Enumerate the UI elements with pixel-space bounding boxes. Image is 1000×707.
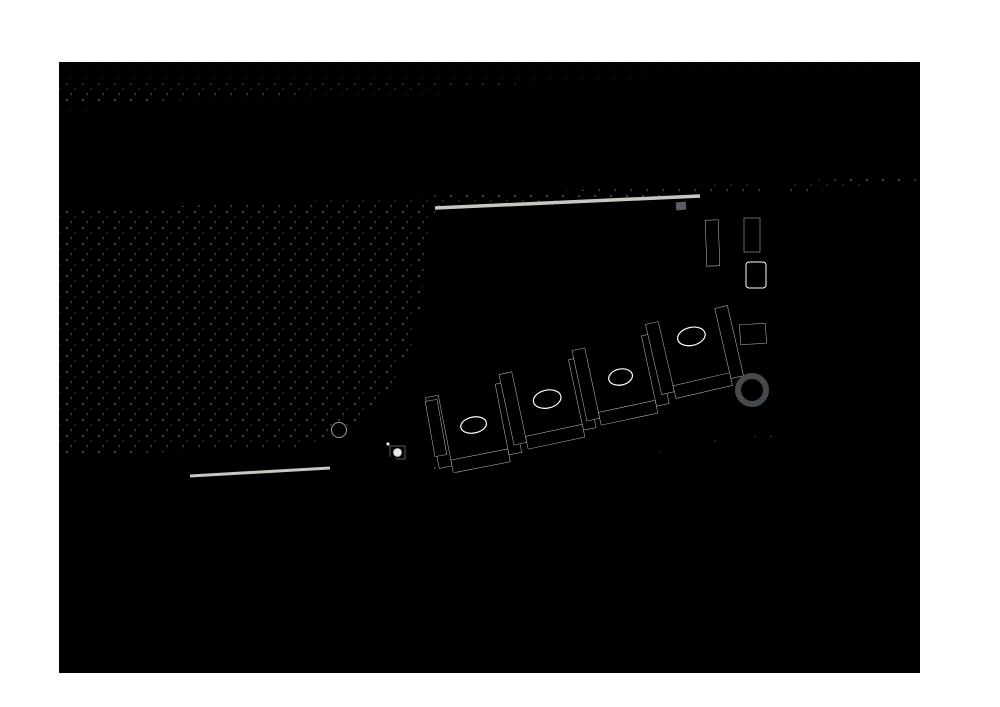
amenity-pavilion: [739, 323, 766, 344]
clubhouse-building: [705, 220, 720, 266]
mosque-minaret: [386, 442, 389, 445]
roundabout-trees: [747, 385, 757, 395]
amenity-tower: [744, 218, 760, 252]
industrial-district-east: [800, 180, 920, 440]
intersection-plaza: [332, 423, 347, 438]
gatehouse: [676, 201, 687, 210]
lap-pool: [746, 262, 766, 288]
mosque-dome: [394, 449, 402, 457]
industrial-ground-east: [800, 180, 920, 440]
masterplan-page: [0, 0, 1000, 707]
site-plan-map: [0, 0, 1000, 707]
amenity-lawn: [741, 295, 772, 321]
